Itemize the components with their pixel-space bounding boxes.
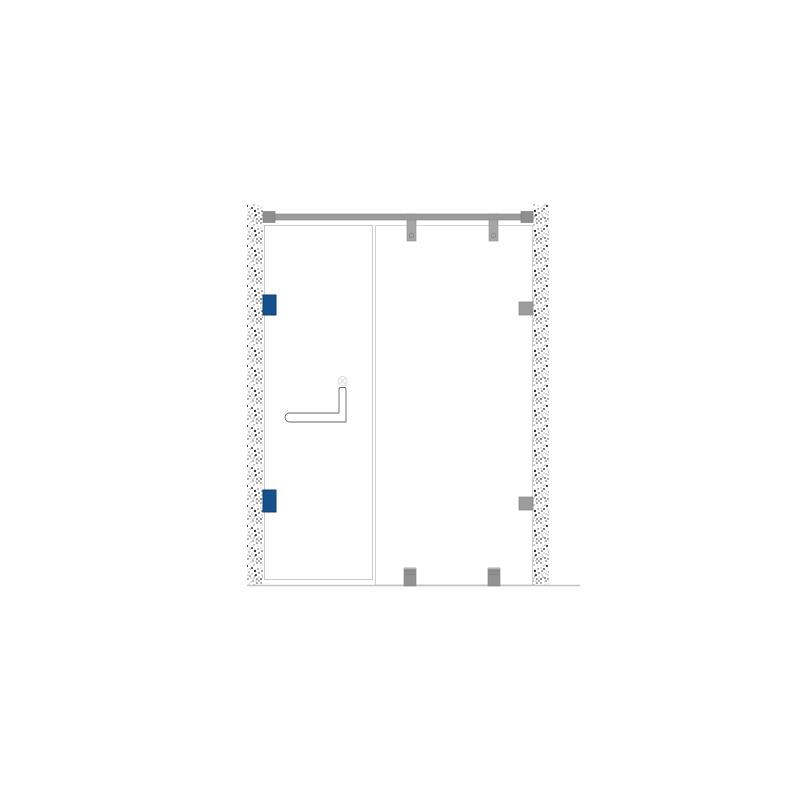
support-bar-bracket-left — [263, 212, 275, 223]
glass-panels-layer — [265, 226, 533, 586]
door-hinge-top — [263, 295, 276, 315]
wall-glass-clamp-bottom — [519, 497, 533, 510]
diagram-stage — [0, 0, 800, 800]
floor-glass-clamp-2 — [488, 568, 500, 586]
wall-glass-clamp-top — [519, 302, 533, 315]
shower-enclosure-drawing — [0, 0, 800, 800]
wall-right — [533, 204, 549, 585]
door-hinge-bottom — [263, 490, 276, 512]
support-bar-bracket-right — [521, 212, 533, 223]
wall-left — [247, 204, 263, 585]
support-bar — [263, 214, 533, 220]
floor-glass-clamp-1 — [404, 568, 416, 586]
door-panel — [265, 226, 373, 580]
fixed-panel — [376, 226, 533, 586]
